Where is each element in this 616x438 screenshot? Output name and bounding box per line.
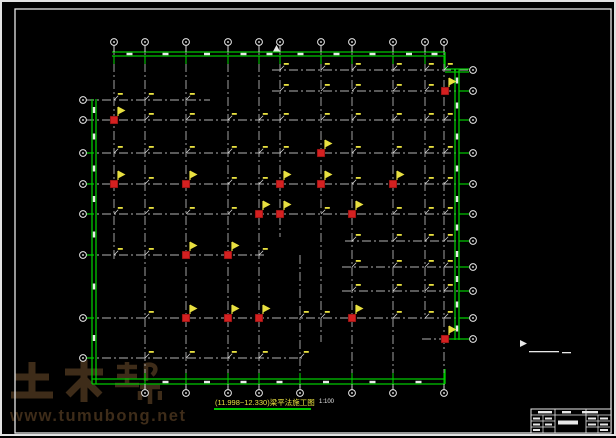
column-markers — [110, 87, 449, 343]
band-labels — [93, 53, 458, 383]
flag-markers — [118, 78, 457, 336]
title-underline — [214, 408, 311, 410]
floor-plan-canvas — [2, 2, 616, 438]
plan-title: (11.998~12.330)梁平法施工图 — [215, 397, 315, 408]
title-block — [531, 409, 611, 433]
sheet-frame — [15, 9, 611, 433]
plan-title-scale: 1:100 — [319, 399, 334, 405]
drawing-sheet: 土木帮 www.tumubong.net (11.998~12.330)梁平法施… — [0, 0, 616, 436]
